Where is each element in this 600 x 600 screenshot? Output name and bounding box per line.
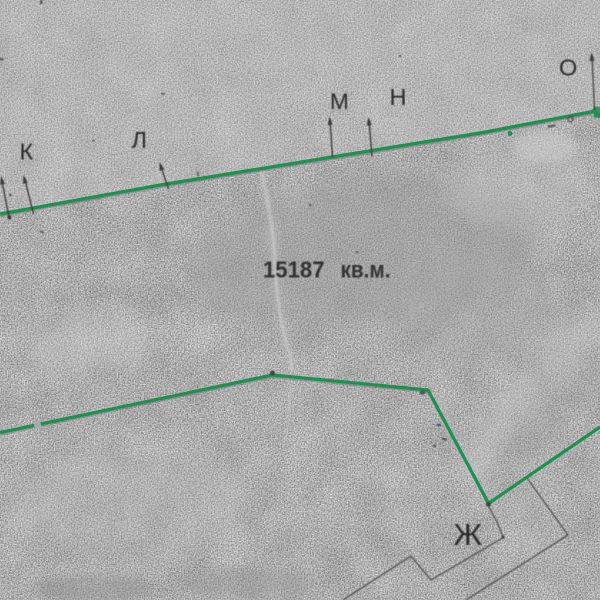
svg-text:М: М — [330, 89, 349, 114]
svg-text:Н: Н — [390, 84, 407, 110]
svg-text:Л: Л — [132, 127, 147, 153]
svg-text:15187: 15187 — [263, 257, 325, 283]
svg-text:О: О — [559, 55, 577, 81]
svg-text:К: К — [20, 139, 34, 165]
svg-text:Ж: Ж — [454, 517, 483, 552]
svg-text:кв.м.: кв.м. — [341, 257, 391, 283]
